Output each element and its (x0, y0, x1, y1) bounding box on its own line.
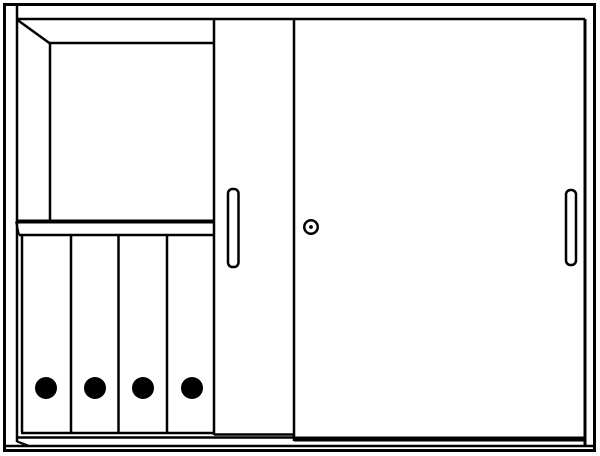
binder-4-finger-hole (181, 377, 203, 399)
binder-2-finger-hole (84, 377, 106, 399)
cabinet-drawing (0, 0, 600, 456)
lock-keyhole-dot (309, 225, 313, 229)
left-door-handle (228, 189, 239, 267)
cabinet-illustration (0, 0, 600, 456)
right-door-handle (566, 190, 576, 265)
binder-3-finger-hole (132, 377, 154, 399)
binder-1-finger-hole (35, 377, 57, 399)
